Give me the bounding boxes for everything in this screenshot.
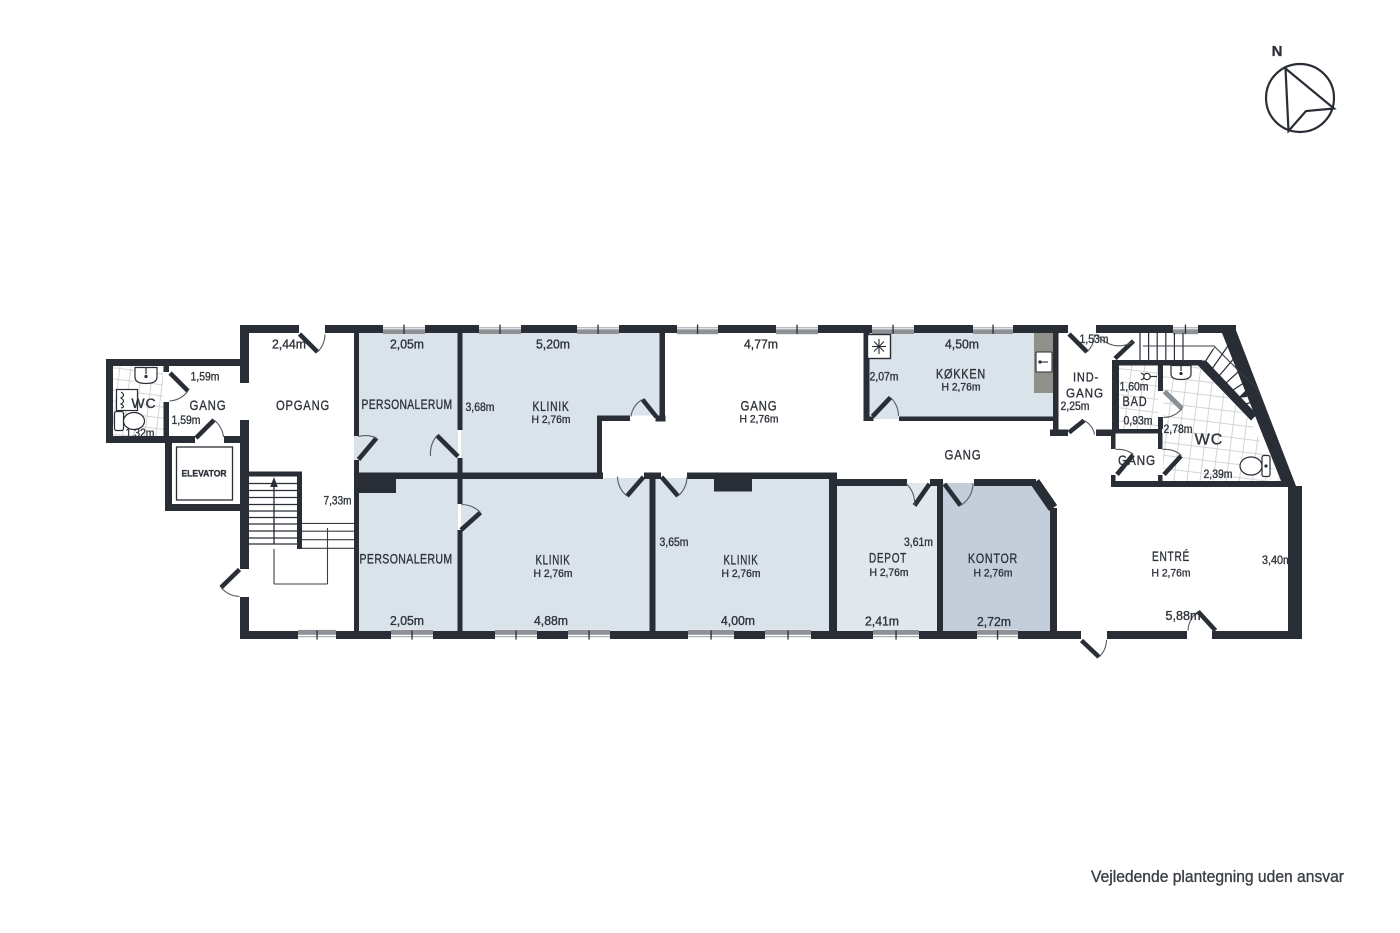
svg-text:2,41m: 2,41m xyxy=(865,614,899,629)
svg-text:H 2,76m: H 2,76m xyxy=(722,568,761,580)
svg-text:2,39m: 2,39m xyxy=(1204,467,1233,481)
svg-text:H 2,76m: H 2,76m xyxy=(534,568,573,580)
svg-text:H 2,76m: H 2,76m xyxy=(1152,568,1191,580)
svg-text:1,60m: 1,60m xyxy=(1120,380,1149,394)
svg-text:0,93m: 0,93m xyxy=(1124,414,1153,428)
svg-text:GANG: GANG xyxy=(190,397,227,413)
svg-text:2,72m: 2,72m xyxy=(977,614,1011,629)
svg-text:H 2,76m: H 2,76m xyxy=(532,414,571,426)
svg-text:1,32m: 1,32m xyxy=(126,426,155,440)
svg-text:PERSONALERUM: PERSONALERUM xyxy=(362,396,453,412)
svg-text:1,59m: 1,59m xyxy=(191,370,220,384)
svg-text:1,59m: 1,59m xyxy=(172,413,201,427)
svg-text:4,50m: 4,50m xyxy=(945,337,979,352)
svg-text:5,88m: 5,88m xyxy=(1166,609,1201,623)
svg-text:DEPOT: DEPOT xyxy=(869,550,907,566)
svg-text:KØKKEN: KØKKEN xyxy=(936,366,986,382)
svg-text:2,78m: 2,78m xyxy=(1164,422,1193,436)
svg-text:2,07m: 2,07m xyxy=(870,370,899,384)
svg-text:PERSONALERUM: PERSONALERUM xyxy=(360,551,453,567)
svg-text:3,68m: 3,68m xyxy=(466,400,495,414)
svg-text:2,25m: 2,25m xyxy=(1061,399,1090,413)
svg-text:WC: WC xyxy=(1195,432,1224,449)
svg-text:GANG: GANG xyxy=(741,398,778,414)
svg-text:WC: WC xyxy=(131,395,156,411)
svg-text:2,44m: 2,44m xyxy=(272,337,306,352)
svg-text:2,05m: 2,05m xyxy=(390,337,424,352)
svg-text:4,00m: 4,00m xyxy=(721,613,755,628)
svg-text:N: N xyxy=(1272,43,1283,60)
svg-text:GANG: GANG xyxy=(1118,453,1156,468)
svg-text:H 2,76m: H 2,76m xyxy=(870,567,909,579)
svg-text:Vejledende plantegning uden an: Vejledende plantegning uden ansvar xyxy=(1091,867,1344,886)
svg-text:KLINIK: KLINIK xyxy=(724,552,759,568)
svg-text:ENTRÉ: ENTRÉ xyxy=(1152,548,1190,564)
svg-text:BAD: BAD xyxy=(1123,394,1148,409)
svg-text:3,40m: 3,40m xyxy=(1262,553,1292,567)
svg-text:GANG: GANG xyxy=(945,447,982,463)
svg-text:IND-: IND- xyxy=(1073,370,1099,385)
svg-text:KLINIK: KLINIK xyxy=(533,398,570,414)
svg-text:KONTOR: KONTOR xyxy=(968,550,1018,566)
svg-text:3,65m: 3,65m xyxy=(660,535,689,549)
svg-text:OPGANG: OPGANG xyxy=(276,397,330,413)
svg-text:5,20m: 5,20m xyxy=(536,337,570,352)
svg-text:4,77m: 4,77m xyxy=(744,337,778,352)
svg-text:4,88m: 4,88m xyxy=(534,613,568,628)
svg-text:H 2,76m: H 2,76m xyxy=(942,382,981,394)
svg-text:ELEVATOR: ELEVATOR xyxy=(182,469,227,479)
svg-text:1,53m: 1,53m xyxy=(1080,332,1109,346)
svg-text:H 2,76m: H 2,76m xyxy=(740,414,779,426)
svg-text:H 2,76m: H 2,76m xyxy=(974,568,1013,580)
svg-text:KLINIK: KLINIK xyxy=(536,552,571,568)
svg-text:2,05m: 2,05m xyxy=(390,613,424,628)
svg-text:3,61m: 3,61m xyxy=(904,535,933,549)
svg-text:7,33m: 7,33m xyxy=(324,494,352,508)
